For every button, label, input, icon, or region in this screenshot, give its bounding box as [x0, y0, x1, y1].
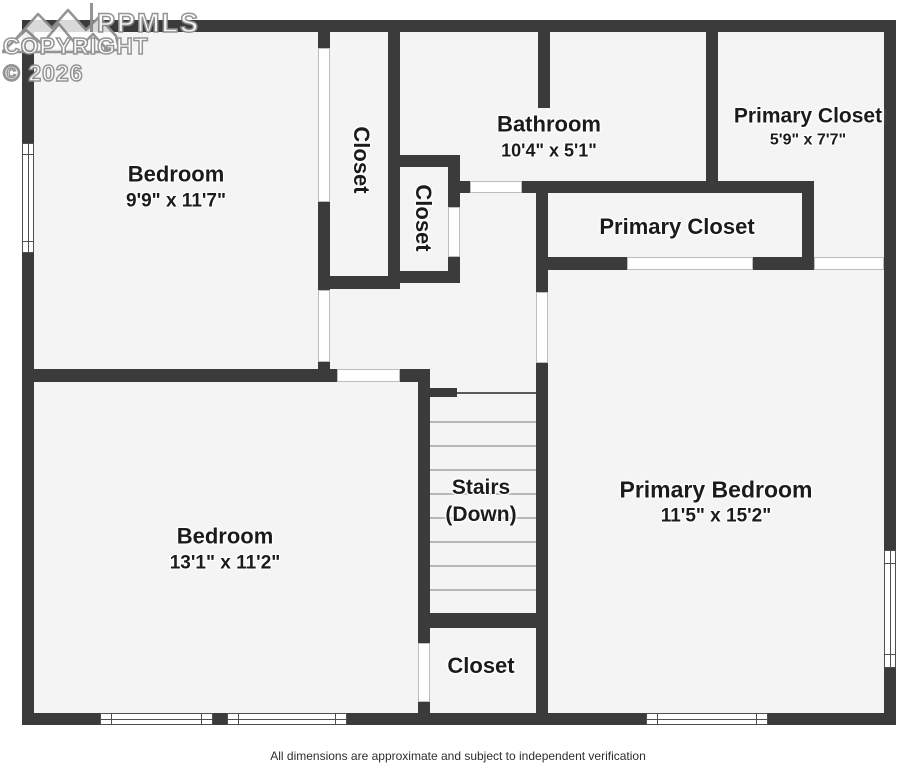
floorplan-page: Bedroom 9'9" x 11'7" Closet Closet Bathr…	[0, 0, 916, 768]
wall-segment	[418, 702, 430, 713]
room-name: Stairs	[445, 474, 516, 501]
stair-tread	[430, 445, 536, 447]
wall-bathroom-closet-divider	[706, 32, 718, 193]
watermark-copyright: COPYRIGHT © 2026	[3, 33, 149, 87]
floor-plan: Bedroom 9'9" x 11'7" Closet Closet Bathr…	[0, 0, 916, 768]
door-opening-primary-bedroom	[536, 292, 548, 363]
watermark-divider	[90, 3, 93, 32]
wall-bathroom-partition	[538, 32, 550, 108]
door-opening-bathroom	[470, 181, 522, 193]
wall-bathroom-bottom	[522, 181, 814, 193]
window	[22, 143, 34, 253]
room-label-primary-closet-mid: Primary Closet	[599, 213, 754, 241]
wall-stairs-right	[536, 363, 548, 713]
room-label-bathroom: Bathroom 10'4" x 5'1"	[497, 111, 601, 164]
door-opening-bedroom-bottom	[337, 369, 400, 382]
stair-tread	[430, 589, 536, 591]
room-dimensions: 5'9" x 7'7"	[733, 130, 883, 152]
door-opening-bedroom-closet	[318, 48, 330, 202]
stair-edge-line	[457, 392, 536, 394]
room-label-closet-tall: Closet	[347, 126, 375, 193]
room-label-primary-bedroom: Primary Bedroom 11'5" x 15'2"	[619, 476, 812, 529]
stair-tread	[430, 469, 536, 471]
room-name: Closet	[409, 184, 437, 251]
room-name: Primary Closet	[733, 103, 883, 130]
window	[884, 550, 896, 668]
door-opening-small-closet	[448, 207, 460, 257]
wall-segment	[400, 369, 430, 382]
room-label-bedroom-top: Bedroom 9'9" x 11'7"	[126, 161, 226, 214]
room-name: Closet	[347, 126, 375, 193]
room-label-bedroom-bottom: Bedroom 13'1" x 11'2"	[170, 523, 281, 576]
window	[100, 713, 213, 725]
wall-primary-closet-bottom	[548, 257, 627, 270]
room-dimensions: 9'9" x 11'7"	[126, 189, 226, 214]
stair-tread	[430, 541, 536, 543]
room-label-closet-small: Closet	[409, 184, 437, 251]
door-opening-primary-closet	[627, 257, 753, 270]
wall-stair-header	[430, 388, 457, 397]
room-qualifier: (Down)	[445, 501, 516, 528]
door-opening-bottom-closet	[418, 643, 430, 702]
room-name: Bedroom	[170, 523, 281, 551]
wall-closet-bottom	[318, 276, 400, 289]
room-name: Primary Closet	[599, 213, 754, 241]
room-label-stairs: Stairs (Down)	[445, 474, 516, 528]
room-name: Bedroom	[126, 161, 226, 189]
room-dimensions: 11'5" x 15'2"	[619, 504, 812, 529]
room-name: Closet	[447, 652, 514, 680]
window	[227, 713, 347, 725]
wall-primary-closet-bottom	[753, 257, 814, 270]
stair-tread	[430, 421, 536, 423]
door-opening-closet-passage	[814, 257, 884, 270]
window	[646, 713, 768, 725]
room-name: Primary Bedroom	[619, 476, 812, 504]
wall-stairs-bottom	[418, 613, 548, 628]
wall-hall-primary-divider	[536, 181, 548, 292]
wall-closet-right	[388, 32, 400, 283]
door-opening-bedroom-top	[318, 290, 330, 362]
stair-tread	[430, 565, 536, 567]
room-label-primary-closet-top: Primary Closet 5'9" x 7'7"	[733, 103, 883, 152]
wall-small-closet-bottom	[400, 271, 460, 283]
wall-segment	[318, 32, 330, 48]
room-label-closet-bottom: Closet	[447, 652, 514, 680]
wall-stairs-left	[418, 382, 430, 643]
wall-bathroom-bottom	[448, 181, 470, 193]
room-dimensions: 10'4" x 5'1"	[497, 139, 601, 164]
room-dimensions: 13'1" x 11'2"	[170, 551, 281, 576]
disclaimer-text: All dimensions are approximate and subje…	[0, 749, 916, 763]
wall-bedroom-divider	[22, 369, 337, 382]
room-name: Bathroom	[497, 111, 601, 139]
